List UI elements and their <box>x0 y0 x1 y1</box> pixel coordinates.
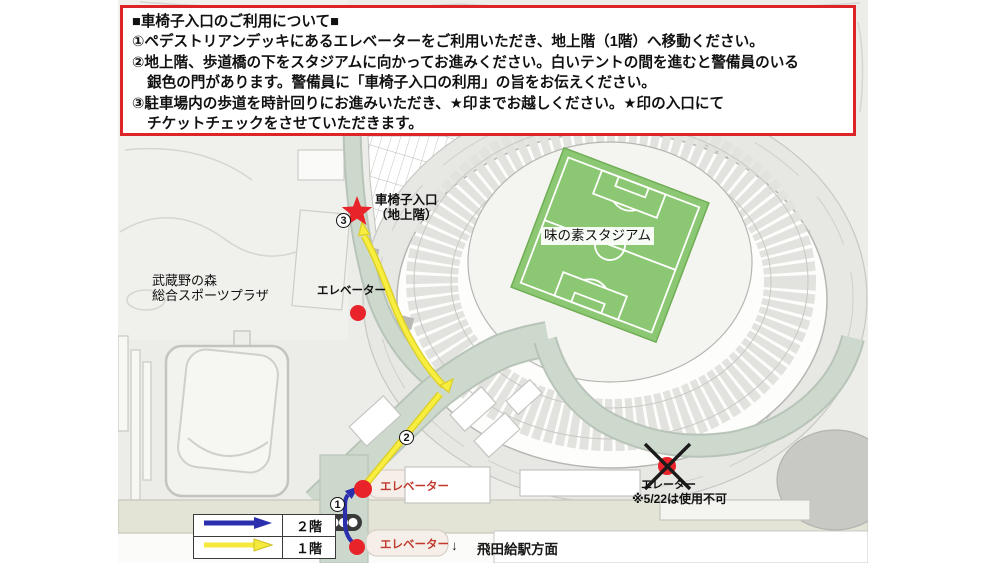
sports-plaza-building <box>166 331 288 496</box>
elevator-dot-station <box>349 539 365 555</box>
legend-2f-label: ２階 <box>283 515 336 537</box>
wheelchair-entrance-label: 車椅子入口 （地上階） <box>375 193 438 223</box>
station-direction-label: 飛田給駅方面 <box>477 538 558 558</box>
instruction-step2-cont: 銀色の門があります。警備員に「車椅子入口の利用」の旨をお伝えください。 <box>132 73 844 93</box>
legend-row-2f: ２階 <box>194 515 336 537</box>
stadium-label: 味の素スタジアム <box>541 227 654 245</box>
elevator-east-note: ※5/22は使用不可 <box>632 492 727 506</box>
legend-1f-arrow-icon <box>194 537 283 559</box>
plaza-label: 武蔵野の森 総合スポーツプラザ <box>152 273 269 304</box>
legend-1f-label: １階 <box>283 537 336 559</box>
legend-2f-arrow-icon <box>194 515 283 537</box>
elevator-dot-mid <box>350 305 366 321</box>
elevator-deck-label: エレベーター <box>380 481 449 495</box>
station-direction-arrow-icon: ↓ <box>451 538 458 553</box>
instructions-title: ■車椅子入口のご利用について■ <box>132 12 844 32</box>
legend-row-1f: １階 <box>194 537 336 559</box>
instructions-box: ■車椅子入口のご利用について■ ①ペデストリアンデッキにあるエレベーターをご利用… <box>120 5 856 136</box>
elevator-dot-deck <box>354 480 372 498</box>
map-page: 武蔵野の森 総合スポーツプラザ 味の素スタジアム 車椅子入口 （地上階） エレベ… <box>0 0 1000 563</box>
instruction-step2: ②地上階、歩道橋の下をスタジアムに向かってお進みください。白いテントの間を進むと… <box>132 53 844 73</box>
elevator-mid-label: エレベーター <box>317 285 386 299</box>
elevator-east-label: エレーター <box>641 479 696 492</box>
marker-1-badge: 1 <box>330 497 345 512</box>
instruction-step3-cont: チケットチェックをさせていただきます。 <box>132 114 844 134</box>
instruction-step3: ③駐車場内の歩道を時計回りにお進みいただき、★印までお越しください。★印の入口に… <box>132 94 844 114</box>
instruction-step1: ①ペデストリアンデッキにあるエレベーターをご利用いただき、地上階（1階）へ移動く… <box>132 32 844 52</box>
marker-3-badge: 3 <box>336 213 351 228</box>
elevator-station-label: エレベーター <box>380 539 449 553</box>
marker-2-badge: 2 <box>399 430 414 445</box>
legend: ２階 １階 <box>193 514 336 559</box>
